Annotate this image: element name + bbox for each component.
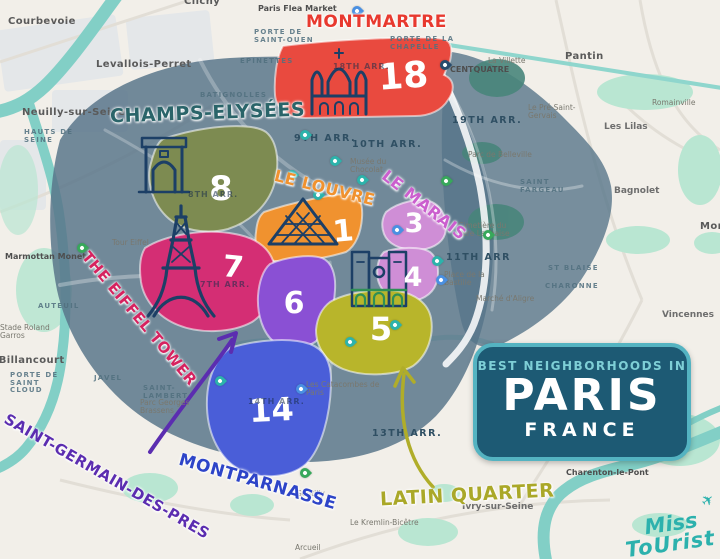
badge-title: PARIS bbox=[477, 373, 687, 419]
number-1: 1 bbox=[331, 213, 355, 250]
badge-country: FRANCE bbox=[477, 419, 687, 441]
label-montmartre: MONTMARTRE bbox=[306, 12, 447, 32]
number-14: 14 bbox=[248, 390, 294, 430]
title-badge: BEST NEIGHBORHOODS IN PARIS FRANCE bbox=[473, 343, 691, 461]
paris-neighborhoods-map: 18 8 1 3 4 7 6 5 14 CourbevoieClichyPari… bbox=[0, 0, 720, 559]
number-18: 18 bbox=[377, 54, 430, 98]
number-5: 5 bbox=[370, 310, 392, 348]
number-4: 4 bbox=[404, 262, 423, 293]
number-6: 6 bbox=[284, 286, 305, 321]
number-8: 8 bbox=[209, 169, 233, 209]
number-7: 7 bbox=[221, 249, 245, 286]
